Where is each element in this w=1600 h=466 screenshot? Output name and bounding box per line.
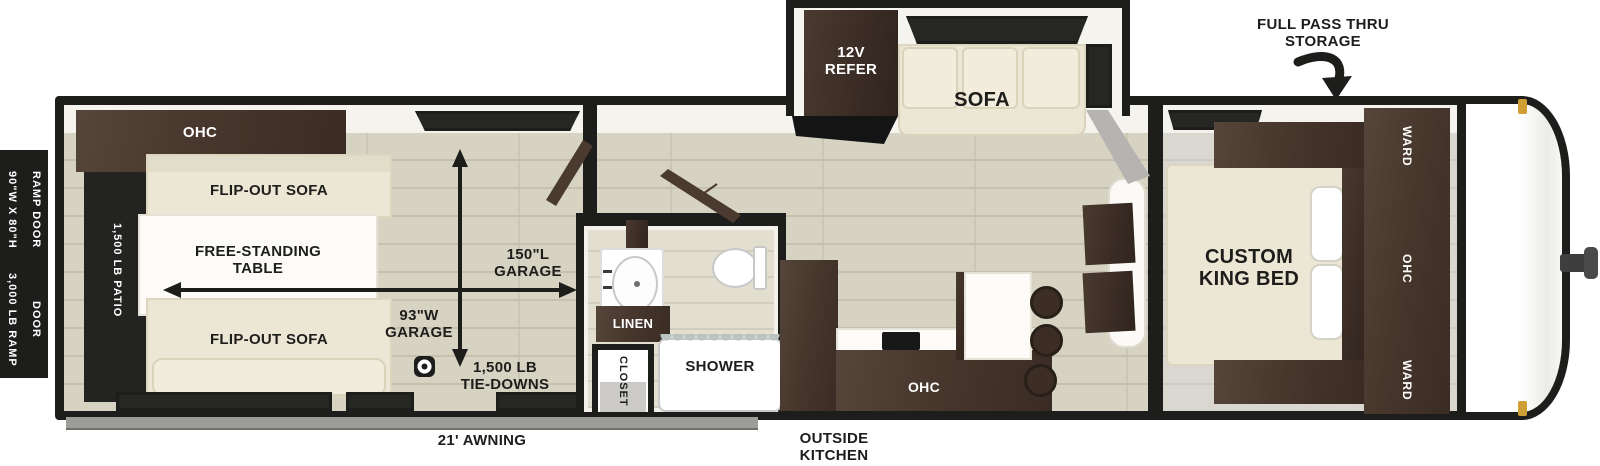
garage-door [546,140,593,206]
refrigerator-front [792,116,898,144]
ramp-door-size-label: 90"W X 80"HRAMP DOOR [2,152,46,268]
entry-door-handle [700,184,717,196]
flip-sofa-bottom-label: FLIP-OUT SOFA [146,329,392,351]
bedroom-ohc-label: OHC [1392,240,1422,298]
storage-arrow [1298,56,1352,100]
garage-width-label: 93"WGARAGE [373,306,465,344]
outside-kitchen-label: OUTSIDEKITCHEN [786,430,882,466]
refer-label: 12VREFER [804,38,898,86]
awning-label: 21' AWNING [418,431,546,451]
garage-ohc-label: OHC [150,120,250,146]
ward-top-label: WARD [1392,114,1422,178]
patio-label: 1,500 LB PATIO [100,210,134,330]
kitchen-ohc-label: OHC [884,377,964,399]
closet-label: CLOSET [606,350,640,412]
tie-downs-label: 1,500 LBTIE-DOWNS [455,359,555,395]
floorplan: 90"W X 80"HRAMP DOOR 3,000 LB RAMPDOOR 1… [0,0,1600,466]
ward-bottom-label: WARD [1392,348,1422,412]
table-label: FREE-STANDINGTABLE [158,240,358,282]
pass-thru-label: FULL PASS THRUSTORAGE [1238,14,1408,54]
shower-label: SHOWER [662,356,778,378]
king-bed-label: CUSTOMKING BED [1168,242,1330,294]
linen-label: LINEN [596,312,670,336]
garage-length-label: 150"LGARAGE [482,245,574,283]
sofa-label: SOFA [930,86,1034,114]
garage-width-arrow [163,282,577,298]
hitch-icon [1560,247,1598,279]
flip-sofa-top-label: FLIP-OUT SOFA [146,180,392,202]
ramp-door-weight-label: 3,000 LB RAMPDOOR [2,262,46,378]
overlay-graphics [0,0,1600,466]
slide-return-wall [1086,110,1150,184]
